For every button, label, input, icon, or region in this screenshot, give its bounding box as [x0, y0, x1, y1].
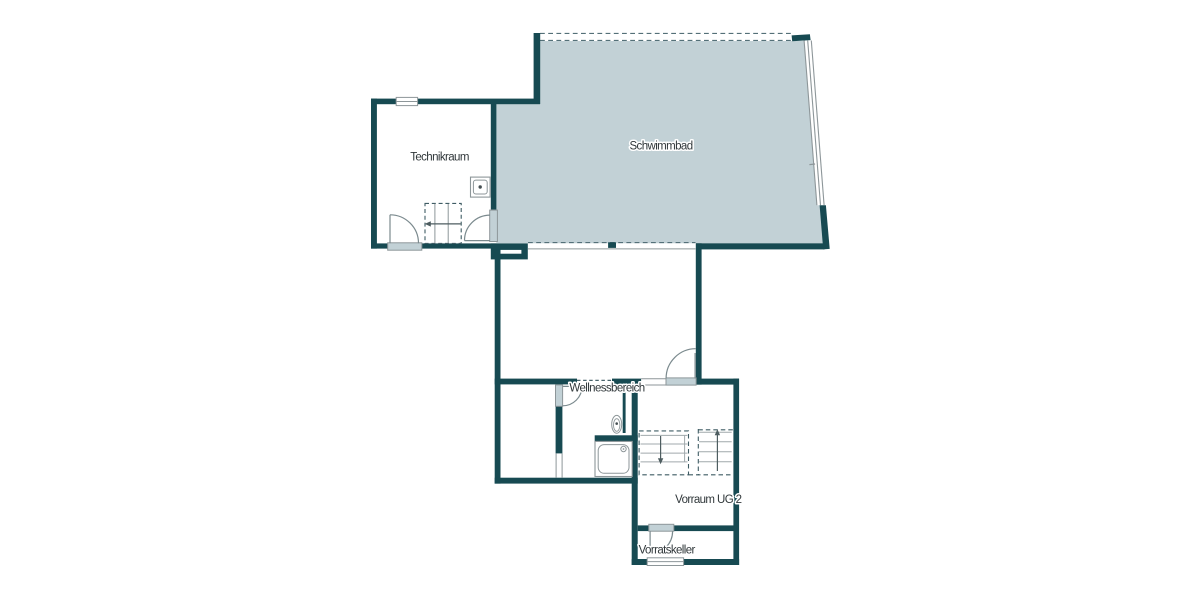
- svg-text:Vorraum UG 2: Vorraum UG 2: [675, 494, 742, 506]
- svg-text:Schwimmbad: Schwimmbad: [629, 141, 692, 153]
- svg-text:Vorratskeller: Vorratskeller: [639, 545, 696, 557]
- svg-text:Technikraum: Technikraum: [410, 151, 469, 163]
- svg-text:Wellnessbereich: Wellnessbereich: [569, 383, 644, 395]
